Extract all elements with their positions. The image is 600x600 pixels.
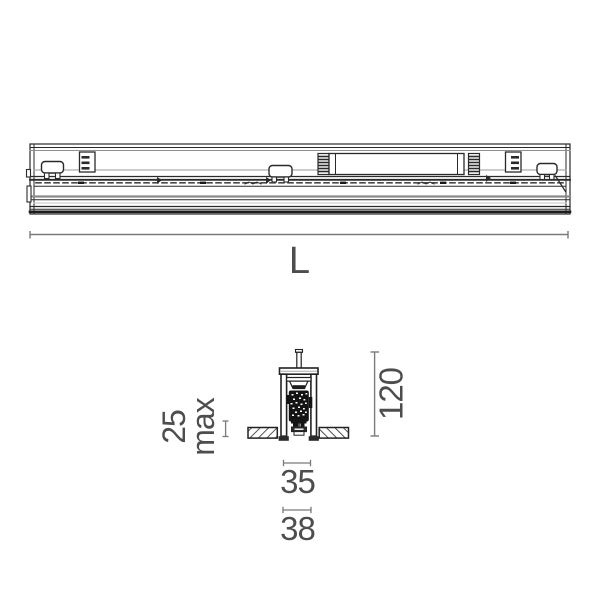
height-dimension-label: 120 bbox=[374, 354, 410, 435]
suspension-stem bbox=[297, 352, 301, 368]
section-view bbox=[248, 350, 349, 441]
overall-width-dimension-label: 38 bbox=[267, 511, 328, 547]
cutout-width-dimension-label: 35 bbox=[267, 464, 328, 500]
wiring-cluster bbox=[286, 391, 312, 428]
mounting-bracket bbox=[287, 378, 311, 389]
recess-depth-dimension-line bbox=[223, 421, 229, 437]
left-end-bracket bbox=[27, 170, 31, 178]
trim-foot-right bbox=[309, 436, 319, 441]
bottom-trim bbox=[292, 427, 307, 435]
left-end-step bbox=[27, 186, 31, 202]
trim-foot-left bbox=[279, 436, 289, 441]
recess-depth-qualifier: max bbox=[189, 392, 218, 462]
right-cable-line bbox=[556, 176, 566, 192]
terminal-box-right bbox=[506, 152, 522, 172]
length-dimension-label: L bbox=[269, 241, 329, 281]
housing-wall-left bbox=[281, 374, 287, 436]
elevation-view bbox=[27, 144, 571, 214]
recess-depth-dimension-label: 25 max bbox=[160, 392, 218, 462]
ceiling-panel-left bbox=[248, 428, 277, 439]
led-driver bbox=[318, 154, 480, 175]
ceiling-panel-right bbox=[319, 428, 348, 439]
length-dimension-line bbox=[30, 231, 568, 239]
terminal-box-left bbox=[80, 152, 96, 172]
luminaire-technical-drawing: L 120 25 max 35 38 bbox=[0, 0, 600, 600]
